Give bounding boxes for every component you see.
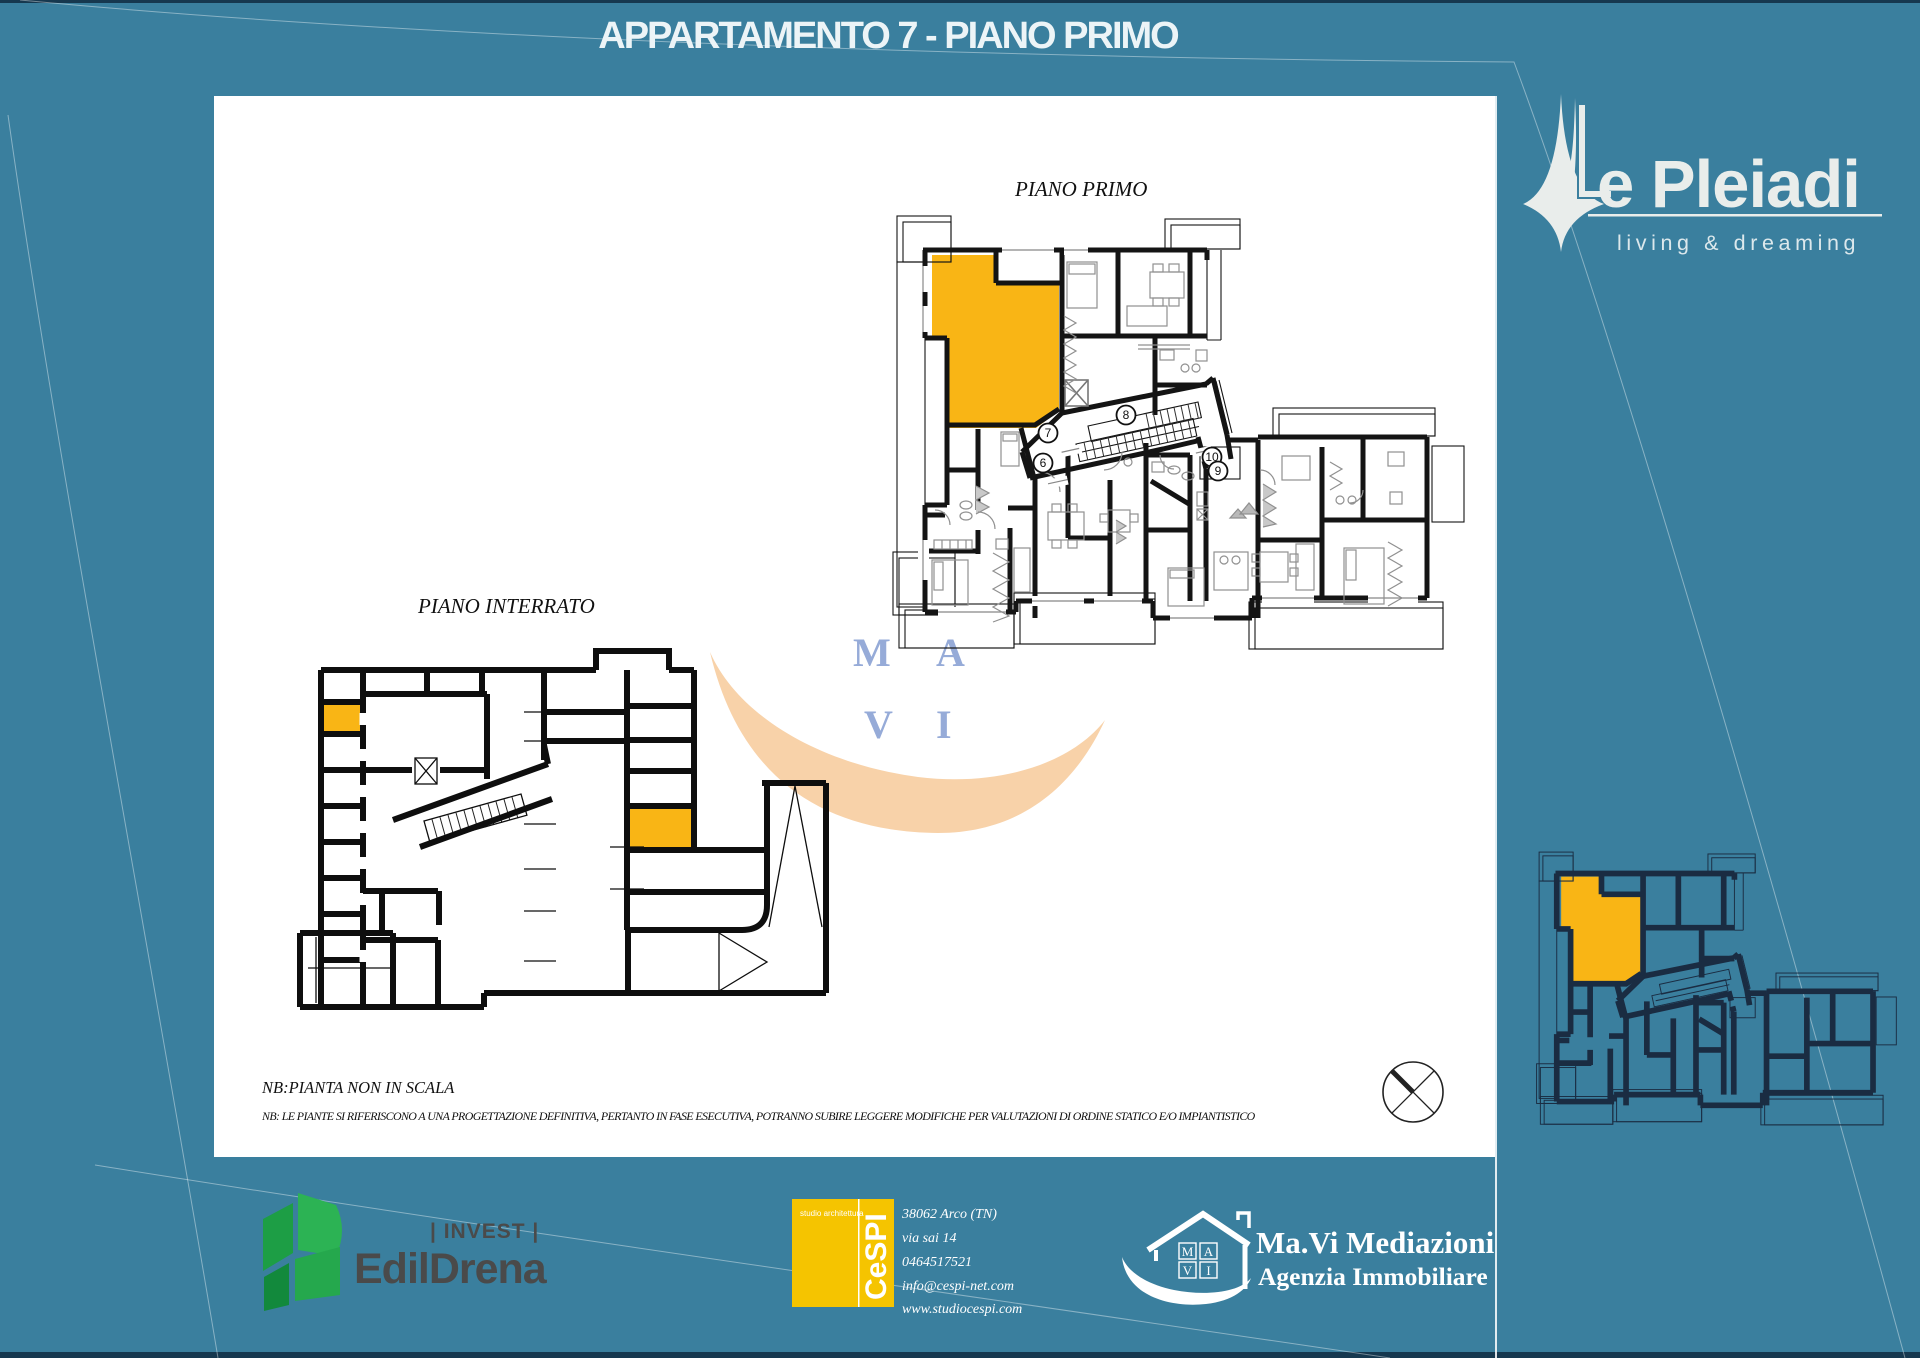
svg-text:PIANO INTERRATO: PIANO INTERRATO xyxy=(417,594,595,618)
svg-text:info@cespi-net.com: info@cespi-net.com xyxy=(902,1279,1014,1294)
svg-text:8: 8 xyxy=(1123,408,1130,422)
svg-text:NB: LE PIANTE SI RIFERISCONO A: NB: LE PIANTE SI RIFERISCONO A UNA PROGE… xyxy=(261,1109,1256,1123)
svg-text:NB:PIANTA NON IN SCALA: NB:PIANTA NON IN SCALA xyxy=(261,1078,455,1097)
svg-text:PIANO PRIMO: PIANO PRIMO xyxy=(1014,177,1147,201)
svg-text:7: 7 xyxy=(1045,426,1052,440)
svg-text:10: 10 xyxy=(1205,450,1219,464)
svg-text:| INVEST |: | INVEST | xyxy=(430,1220,539,1243)
svg-text:V: V xyxy=(1183,1263,1193,1278)
svg-text:A: A xyxy=(1204,1244,1214,1259)
svg-text:CeSPI: CeSPI xyxy=(860,1213,893,1300)
svg-text:V: V xyxy=(864,702,893,747)
svg-text:www.studiocespi.com: www.studiocespi.com xyxy=(902,1302,1022,1317)
svg-text:studio architettura: studio architettura xyxy=(800,1209,864,1218)
svg-text:9: 9 xyxy=(1215,464,1222,478)
svg-text:M: M xyxy=(853,630,891,675)
svg-text:I: I xyxy=(936,702,952,747)
svg-text:EdilDrena: EdilDrena xyxy=(354,1245,548,1293)
svg-text:via sai 14: via sai 14 xyxy=(902,1231,956,1246)
svg-text:Agenzia Immobiliare: Agenzia Immobiliare xyxy=(1258,1262,1488,1291)
svg-text:6: 6 xyxy=(1040,456,1047,470)
svg-text:38062 Arco (TN): 38062 Arco (TN) xyxy=(901,1207,997,1222)
svg-text:A: A xyxy=(936,630,965,675)
svg-text:M: M xyxy=(1182,1244,1194,1259)
svg-text:Ma.Vi Mediazioni: Ma.Vi Mediazioni xyxy=(1256,1225,1495,1260)
svg-text:I: I xyxy=(1206,1263,1210,1278)
svg-text:0464517521: 0464517521 xyxy=(902,1255,972,1270)
svg-text:living & dreaming: living & dreaming xyxy=(1617,231,1860,255)
svg-text:APPARTAMENTO 7 - PIANO PRIMO: APPARTAMENTO 7 - PIANO PRIMO xyxy=(598,15,1178,57)
svg-text:e Pleiadi: e Pleiadi xyxy=(1597,147,1860,222)
